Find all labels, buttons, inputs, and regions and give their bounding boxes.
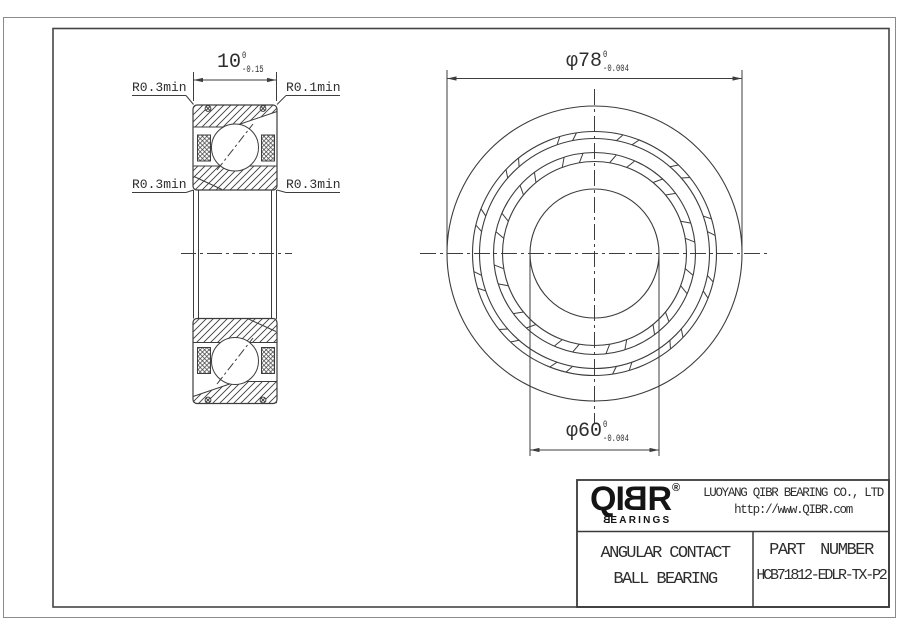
brand-logo-wordmark: QIBR® [590,484,679,514]
outer-page-border [4,18,896,618]
dimension-tolerance: 0 -0.004 [603,421,629,445]
fillet-label-top-left: R0.3min [132,81,187,94]
tolerance-lower: -0.004 [603,65,629,75]
drawing-sheet: { "colors": { "line": "#3d3d3d", "frame"… [0,0,900,636]
fillet-label-bottom-left: R0.3min [132,178,187,191]
bore-edge-lines [194,190,277,319]
bore-dimension-text: φ60 0 -0.004 [566,421,639,445]
registered-trademark-icon: ® [672,483,679,494]
dimension-tolerance: 0 -0.004 [603,51,629,75]
dimension-value: φ60 [566,421,602,443]
fillet-label-bottom-right: R0.3min [286,178,341,191]
fillet-label-top-right: R0.1min [286,81,341,94]
company-info: LUOYANG QIBR BEARING CO., LTD http://www… [701,485,885,518]
tolerance-lower: -0.004 [603,435,629,445]
cage-section-bottom-right [262,348,275,374]
product-type-cell: ANGULAR CONTACT BALL BEARING [578,541,752,592]
logo-letters: QI [590,484,624,514]
company-name: LUOYANG QIBR BEARING CO., LTD [701,485,885,502]
logo-letters: R [647,484,671,514]
tolerance-upper: 0 [603,421,629,431]
outer-diameter-dimension-text: φ78 0 -0.004 [566,51,639,75]
tolerance-upper: 0 [242,52,264,62]
logo-mirrored-letter: B [624,484,648,514]
width-dimension-text: 10 0 -0.15 [217,52,272,76]
cage-section-top-left [198,135,211,161]
cage-section-top-right [262,135,275,161]
part-number-label: PART NUMBER [754,539,888,562]
ball-section-bottom [212,338,259,385]
product-type-line2: BALL BEARING [578,567,752,593]
brand-logo: QIBR® BEARINGS [590,484,679,526]
product-type-line1: ANGULAR CONTACT [578,541,752,567]
dimension-value: φ78 [566,51,602,73]
part-number-value: HCB71812-EDLR-TX-P2 [754,562,888,590]
section-view [181,105,292,404]
logo-mirrored-letter: B [601,515,610,526]
cage-section-bottom-left [198,348,211,374]
ball-section-top [212,124,259,171]
part-number-cell: PART NUMBER HCB71812-EDLR-TX-P2 [754,539,888,590]
drawing-frame [53,29,889,608]
dimension-value: 10 [217,52,241,74]
dimension-tolerance: 0 -0.15 [242,52,264,76]
front-view [420,89,771,423]
tolerance-lower: -0.15 [242,66,264,76]
tolerance-upper: 0 [603,51,629,61]
company-website: http://www.QIBR.com [701,502,885,519]
